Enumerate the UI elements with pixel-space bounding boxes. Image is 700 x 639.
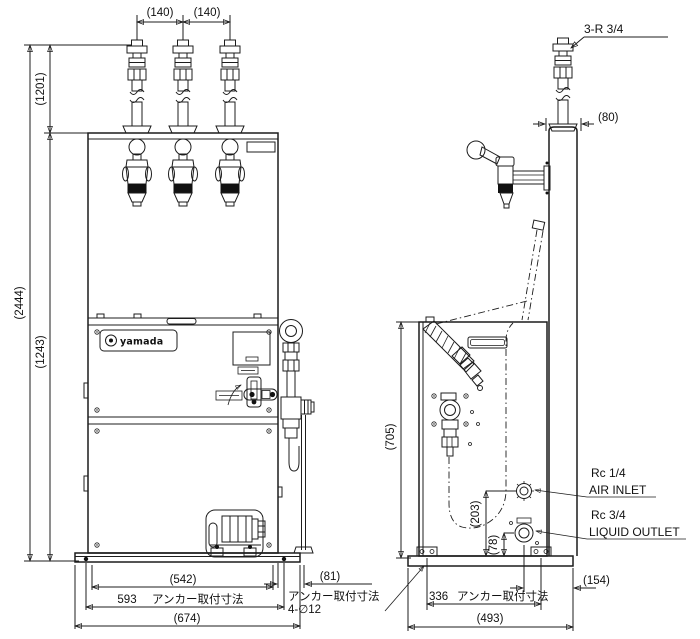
label-riser-thread: 3-R 3/4	[584, 22, 624, 36]
dim-front-height-upper: (1201)	[35, 72, 47, 105]
anchor-note-leader	[385, 566, 424, 611]
screw-icon	[464, 394, 468, 398]
screw-icon	[95, 330, 99, 334]
front-side-pipe	[280, 320, 315, 554]
screw-icon	[432, 394, 436, 398]
dim-front-height-cabinet: (1243)	[35, 335, 47, 368]
front-view: (140) (140) (2444) (1201) (1243)	[14, 7, 372, 629]
dim-side-outlet-height: (78)	[488, 535, 500, 556]
front-riser-3	[216, 40, 244, 133]
screw-icon	[464, 422, 468, 426]
front-base-plate	[75, 553, 300, 562]
screw-icon	[267, 543, 271, 547]
technical-drawing: (140) (140) (2444) (1201) (1243)	[0, 0, 700, 639]
screw-icon	[95, 408, 99, 412]
anchor-note: アンカー取付寸法 4-∅12	[288, 566, 424, 616]
front-cabinet	[84, 133, 282, 553]
anchor-note-line1: アンカー取付寸法	[288, 589, 380, 603]
internal-valve	[440, 393, 460, 456]
dim-side-body-height: (705)	[385, 423, 397, 450]
dim-front-base-width: (674)	[174, 613, 201, 625]
front-nozzle-3	[216, 139, 245, 206]
support-column	[549, 127, 577, 556]
air-inlet-callout: Rc 1/4 AIR INLET	[535, 466, 656, 497]
anchor-bolt	[282, 557, 286, 561]
internal-hose-route	[449, 323, 513, 528]
riser-thread-leader	[571, 37, 668, 48]
dim-side-base-depth: (493)	[477, 613, 504, 625]
pump-unit	[206, 510, 265, 557]
dim-front-pipe-offset: (81)	[320, 571, 341, 583]
label-liquid-outlet: LIQUID OUTLET	[589, 525, 680, 539]
dim-side	[396, 322, 596, 631]
dispensing-valve	[467, 141, 550, 208]
side-riser	[549, 38, 577, 131]
hose-phantom-lines	[436, 220, 545, 324]
front-riser-2	[169, 40, 197, 133]
anchor-note-line2: 4-∅12	[288, 604, 321, 616]
side-cabinet	[419, 317, 547, 556]
arrow-icon	[228, 385, 241, 405]
liquid-outlet-port	[510, 518, 539, 545]
dim-front-pitch-left: (140)	[147, 7, 174, 19]
dim-front-heights	[24, 45, 131, 561]
dim-side-anchor-label: アンカー取付寸法	[457, 589, 549, 603]
dim-front-anchor-value: 593	[117, 594, 136, 606]
dim-riser-width-value: (80)	[598, 112, 619, 124]
screw-icon	[267, 408, 271, 412]
label-air-inlet: AIR INLET	[589, 483, 647, 497]
dim-front-anchor-label: アンカー取付寸法	[152, 592, 244, 606]
front-nozzle-2	[169, 139, 198, 206]
screw-icon	[95, 543, 99, 547]
side-view: 3-R 3/4 (80)	[385, 22, 686, 631]
dim-side-outlet-offset: (154)	[583, 575, 610, 587]
label-liquid-outlet-thread: Rc 3/4	[591, 508, 626, 522]
dim-front-height-total: (2444)	[14, 286, 26, 319]
front-nozzle-1	[123, 139, 152, 206]
screw-icon	[432, 422, 436, 426]
screw-icon	[95, 429, 99, 433]
liquid-outlet-callout: Rc 3/4 LIQUID OUTLET	[536, 508, 686, 539]
brand-badge: yamada	[100, 330, 177, 351]
drawing-page: (140) (140) (2444) (1201) (1243)	[0, 0, 700, 639]
anchor-bolt	[84, 557, 88, 561]
dim-front-pitch-right: (140)	[194, 7, 221, 19]
dim-side-air-height: (203)	[470, 500, 482, 527]
dim-side-anchor-value: 336	[429, 591, 448, 603]
label-air-inlet-thread: Rc 1/4	[591, 466, 626, 480]
window-latch	[246, 357, 258, 361]
dim-front-base-inner: (542)	[170, 574, 197, 586]
stored-nozzle	[280, 320, 303, 343]
nozzle-holder	[423, 321, 474, 369]
hose-hook	[289, 438, 299, 471]
front-riser-1	[123, 40, 151, 133]
brand-logo-text: yamada	[120, 337, 163, 348]
inspection-window	[233, 332, 270, 365]
control-panel	[216, 367, 277, 407]
screw-icon	[267, 429, 271, 433]
